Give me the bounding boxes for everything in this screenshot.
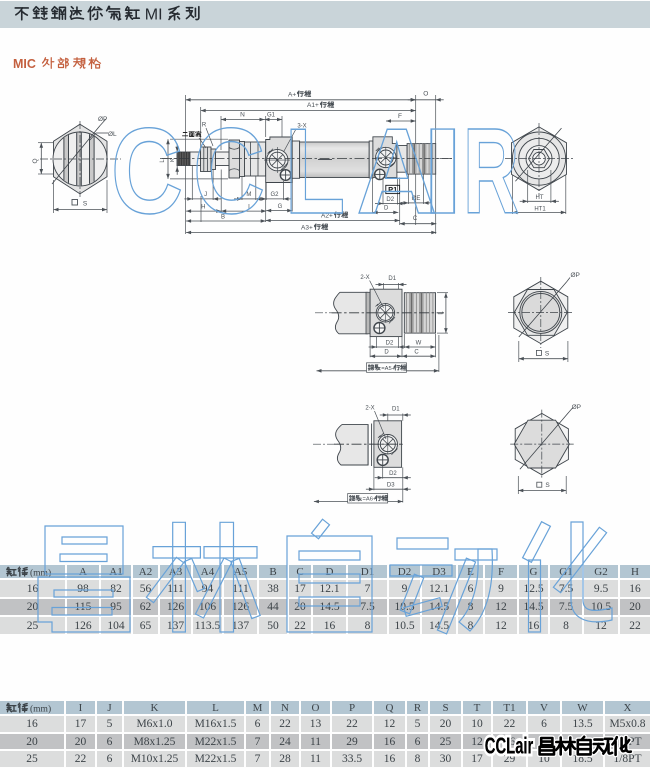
svg-text:D2: D2 <box>386 340 394 346</box>
svg-text:=A5+: =A5+ <box>381 366 395 372</box>
svg-text:CCLair: CCLair <box>485 733 534 759</box>
svg-text:D: D <box>384 350 389 356</box>
svg-text:2-X: 2-X <box>360 275 369 281</box>
svg-text:ØP: ØP <box>571 272 580 279</box>
svg-text:D2: D2 <box>389 471 397 477</box>
svg-text:MI: MI <box>145 7 163 24</box>
svg-text:C: C <box>111 103 183 240</box>
svg-text:C: C <box>414 350 419 356</box>
svg-text:W: W <box>416 340 422 346</box>
svg-text:D3: D3 <box>387 482 395 488</box>
svg-text:ØP: ØP <box>572 404 581 411</box>
svg-text:HT1: HT1 <box>534 206 546 212</box>
svg-text:Q: Q <box>32 158 39 163</box>
svg-text:MIC: MIC <box>13 57 36 71</box>
svg-text:D1: D1 <box>392 407 400 413</box>
svg-text:S: S <box>83 201 88 208</box>
svg-text:ØP: ØP <box>98 116 107 123</box>
svg-text:A+: A+ <box>288 91 296 98</box>
svg-text:R: R <box>463 102 519 239</box>
svg-text:C: C <box>193 103 265 240</box>
svg-text:O: O <box>423 91 428 98</box>
svg-text:=A6+: =A6+ <box>363 497 377 503</box>
svg-text:S: S <box>545 482 550 489</box>
svg-text:D1: D1 <box>388 276 396 282</box>
svg-text:S: S <box>545 350 550 357</box>
svg-text:I: I <box>421 103 465 239</box>
svg-text:L: L <box>284 103 345 240</box>
svg-text:(mm): (mm) <box>30 704 51 715</box>
svg-text:G2: G2 <box>270 192 279 198</box>
svg-text:G: G <box>278 204 283 210</box>
svg-text:G1: G1 <box>267 112 276 118</box>
svg-text:HT: HT <box>536 195 544 201</box>
svg-text:2-X: 2-X <box>365 406 374 412</box>
